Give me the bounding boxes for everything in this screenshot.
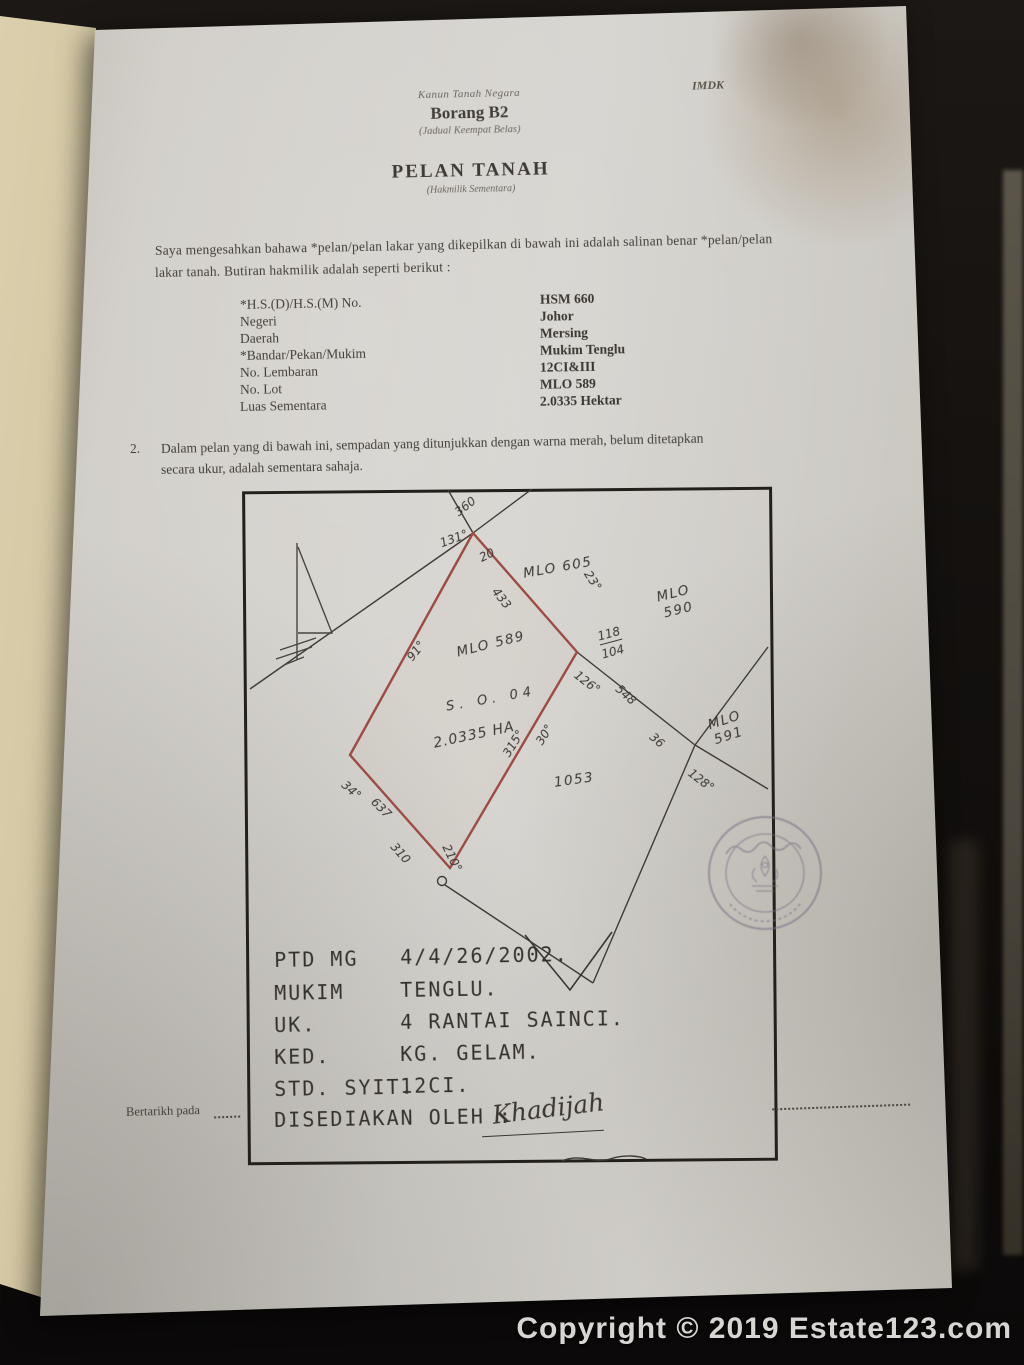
clause-number: 2. [130,441,140,457]
field-value: Mersing [540,325,588,342]
field-value: 2.0335 Hektar [540,392,622,409]
copyright-watermark: Copyright © 2019 Estate123.com [516,1312,1012,1346]
document-header: Kanun Tanah Negara Borang B2 (Jadual Kee… [299,84,641,198]
field-value: HSM 660 [540,291,595,308]
detail-row: MUKIM [274,980,345,1005]
dotted-line [214,1106,240,1119]
detail-value: KG. GELAM. [400,1040,541,1066]
field-value: 12CI&III [540,359,596,376]
detail-value: TENGLU. [400,976,499,1002]
dotted-line [772,1094,910,1111]
flourish-mark [560,1152,650,1168]
boundary-line [445,885,593,983]
detail-value: 4/4/26/2002. [400,942,569,969]
field-value: Mukim Tenglu [540,341,625,358]
detail-label: UK. [274,1012,317,1037]
dated-on-label: Bertarikh pada [126,1103,200,1120]
paper-wrap: IMDK Kanun Tanah Negara Borang B2 (Jadua… [0,0,1024,1365]
detail-row: STD. SYIT. [274,1075,415,1101]
north-arrow-icon [276,543,332,665]
document-paper: IMDK Kanun Tanah Negara Borang B2 (Jadua… [0,0,1024,1365]
detail-label: KED. [274,1044,331,1069]
detail-row: UK. [274,1012,317,1037]
boundary-line [473,489,532,533]
boundary-line [593,745,695,983]
detail-row: KED. [274,1044,331,1069]
field-value: Johor [540,308,574,325]
detail-label: MUKIM [274,980,345,1005]
document-photo: IMDK Kanun Tanah Negara Borang B2 (Jadua… [0,0,1024,1365]
detail-label: PTD MG [274,947,359,972]
detail-value: 4 RANTAI SAINCI. [400,1006,625,1034]
detail-row: PTD MG [274,947,359,972]
field-value: MLO 589 [540,376,596,393]
detail-label: STD. SYIT. [274,1075,415,1101]
survey-point-marker [438,877,447,886]
official-stamp-seal [700,808,830,938]
prepared-by-label: DISEDIAKAN OLEH : [274,1104,513,1132]
corner-code: IMDK [692,77,725,93]
detail-value: 12CI. [400,1073,471,1098]
